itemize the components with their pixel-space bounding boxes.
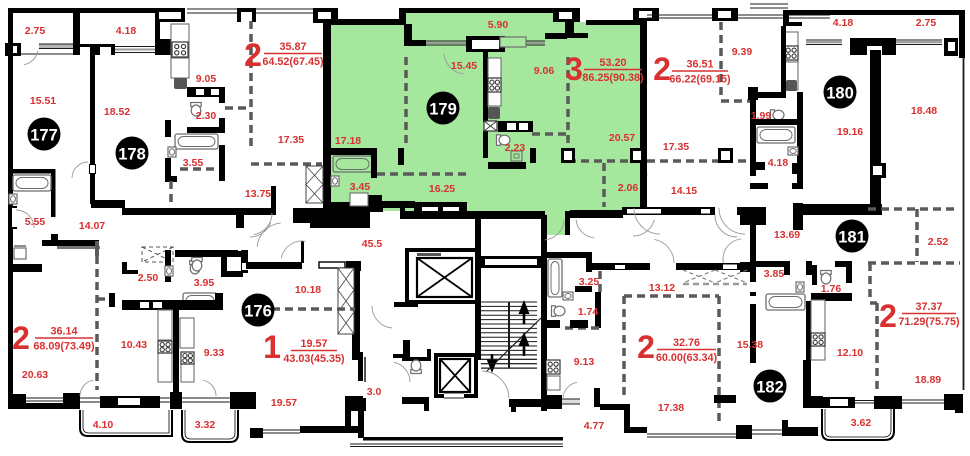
- svg-text:17.18: 17.18: [335, 135, 361, 147]
- svg-text:3.95: 3.95: [194, 277, 215, 289]
- svg-text:18.48: 18.48: [911, 105, 937, 117]
- svg-text:19.57: 19.57: [271, 397, 297, 409]
- svg-text:5.55: 5.55: [25, 216, 46, 228]
- svg-text:9.05: 9.05: [196, 73, 217, 85]
- svg-text:14.07: 14.07: [79, 220, 105, 232]
- svg-text:5.90: 5.90: [488, 19, 509, 31]
- svg-text:14.15: 14.15: [671, 185, 697, 197]
- svg-text:3.55: 3.55: [183, 157, 204, 169]
- svg-text:71.29(75.75): 71.29(75.75): [898, 316, 960, 328]
- svg-text:17.38: 17.38: [658, 402, 684, 414]
- svg-text:36.51: 36.51: [686, 59, 713, 71]
- svg-text:179: 179: [429, 101, 457, 119]
- svg-text:2: 2: [879, 298, 897, 334]
- svg-text:13.69: 13.69: [774, 229, 800, 241]
- svg-text:2: 2: [653, 51, 671, 87]
- svg-text:2.75: 2.75: [25, 25, 46, 37]
- svg-text:2: 2: [244, 37, 262, 73]
- svg-text:20.63: 20.63: [22, 369, 48, 381]
- svg-text:15.51: 15.51: [30, 95, 56, 107]
- svg-text:3.62: 3.62: [851, 417, 872, 429]
- svg-text:13.12: 13.12: [649, 282, 675, 294]
- svg-text:2.52: 2.52: [928, 236, 949, 248]
- svg-text:3.45: 3.45: [350, 181, 371, 193]
- svg-text:15.45: 15.45: [451, 60, 477, 72]
- svg-text:36.14: 36.14: [50, 326, 77, 338]
- svg-text:66.22(69.15): 66.22(69.15): [669, 74, 731, 86]
- svg-text:86.25(90.38): 86.25(90.38): [582, 72, 644, 84]
- svg-text:68.09(73.49): 68.09(73.49): [33, 341, 95, 353]
- svg-text:19.16: 19.16: [837, 126, 863, 138]
- svg-text:64.52(67.45): 64.52(67.45): [262, 56, 324, 68]
- svg-text:3.85: 3.85: [764, 268, 785, 280]
- svg-text:178: 178: [118, 146, 146, 164]
- svg-text:2: 2: [637, 329, 655, 365]
- svg-text:15.38: 15.38: [737, 339, 763, 351]
- svg-text:53.20: 53.20: [599, 57, 626, 69]
- svg-text:37.37: 37.37: [915, 301, 942, 313]
- svg-text:35.87: 35.87: [279, 41, 306, 53]
- svg-text:2.30: 2.30: [196, 110, 217, 122]
- svg-text:4.18: 4.18: [116, 25, 137, 37]
- svg-text:1.99: 1.99: [751, 110, 772, 122]
- svg-text:13.75: 13.75: [245, 188, 271, 200]
- svg-text:182: 182: [756, 379, 784, 397]
- svg-text:18.52: 18.52: [104, 106, 130, 118]
- svg-text:9.33: 9.33: [204, 347, 225, 359]
- svg-text:2.75: 2.75: [916, 17, 937, 29]
- svg-text:176: 176: [244, 303, 272, 321]
- svg-text:2.50: 2.50: [138, 272, 159, 284]
- svg-text:1: 1: [263, 329, 281, 365]
- svg-text:60.00(63.34): 60.00(63.34): [656, 352, 718, 364]
- svg-text:12.10: 12.10: [837, 347, 863, 359]
- svg-text:45.5: 45.5: [362, 238, 383, 250]
- svg-text:19.57: 19.57: [300, 338, 327, 350]
- svg-text:3.0: 3.0: [367, 386, 382, 398]
- svg-text:177: 177: [30, 127, 58, 145]
- svg-text:3.25: 3.25: [579, 276, 600, 288]
- svg-text:16.25: 16.25: [429, 183, 455, 195]
- svg-text:4.18: 4.18: [768, 157, 789, 169]
- svg-text:4.10: 4.10: [93, 419, 114, 431]
- svg-text:3: 3: [565, 51, 583, 87]
- svg-text:43.03(45.35): 43.03(45.35): [283, 353, 345, 365]
- svg-text:2.23: 2.23: [505, 142, 526, 154]
- svg-text:3.32: 3.32: [195, 419, 216, 431]
- svg-text:1.76: 1.76: [821, 283, 842, 295]
- svg-text:4.77: 4.77: [584, 420, 605, 432]
- svg-text:10.43: 10.43: [121, 339, 147, 351]
- svg-text:2.06: 2.06: [618, 182, 639, 194]
- svg-text:9.06: 9.06: [534, 65, 555, 77]
- svg-text:2: 2: [12, 320, 30, 356]
- svg-text:18.89: 18.89: [915, 374, 941, 386]
- svg-text:10.18: 10.18: [295, 284, 321, 296]
- svg-text:17.35: 17.35: [663, 141, 689, 153]
- svg-text:17.35: 17.35: [278, 134, 304, 146]
- svg-text:181: 181: [838, 229, 866, 247]
- svg-text:4.18: 4.18: [833, 17, 854, 29]
- svg-text:9.13: 9.13: [574, 356, 595, 368]
- svg-text:32.76: 32.76: [673, 337, 700, 349]
- svg-text:1.74: 1.74: [578, 306, 599, 318]
- svg-text:20.57: 20.57: [609, 132, 635, 144]
- svg-text:9.39: 9.39: [732, 46, 753, 58]
- svg-text:180: 180: [826, 85, 854, 103]
